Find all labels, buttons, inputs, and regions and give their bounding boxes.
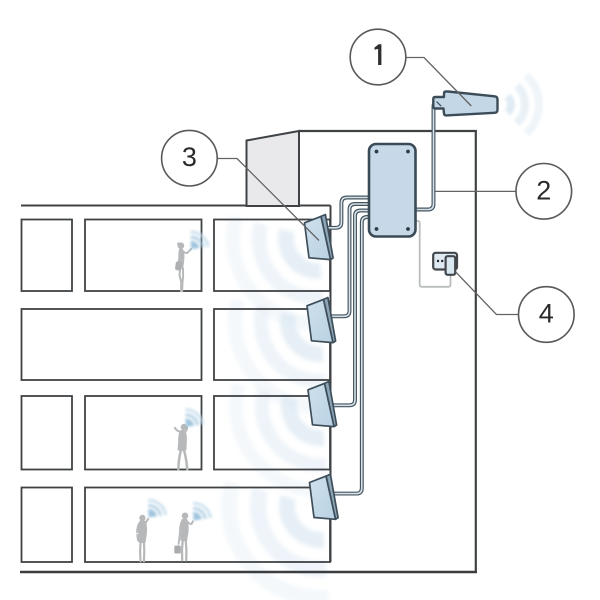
svg-text:2: 2: [536, 175, 551, 205]
svg-text:4: 4: [539, 299, 554, 329]
svg-text:3: 3: [182, 142, 197, 172]
